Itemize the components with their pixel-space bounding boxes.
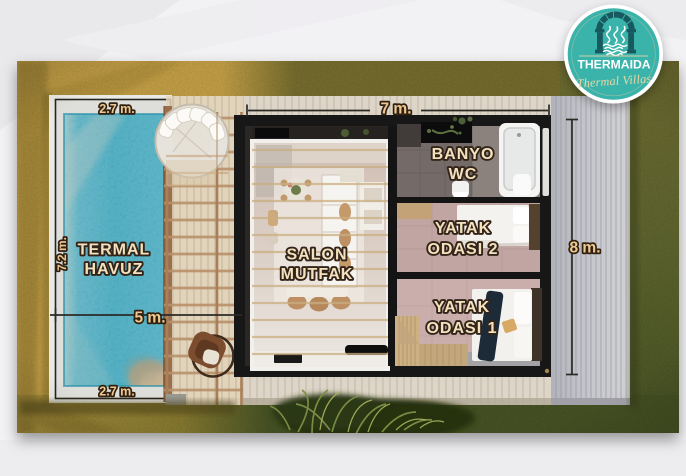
svg-text:THERMAIDA: THERMAIDA — [577, 58, 650, 72]
